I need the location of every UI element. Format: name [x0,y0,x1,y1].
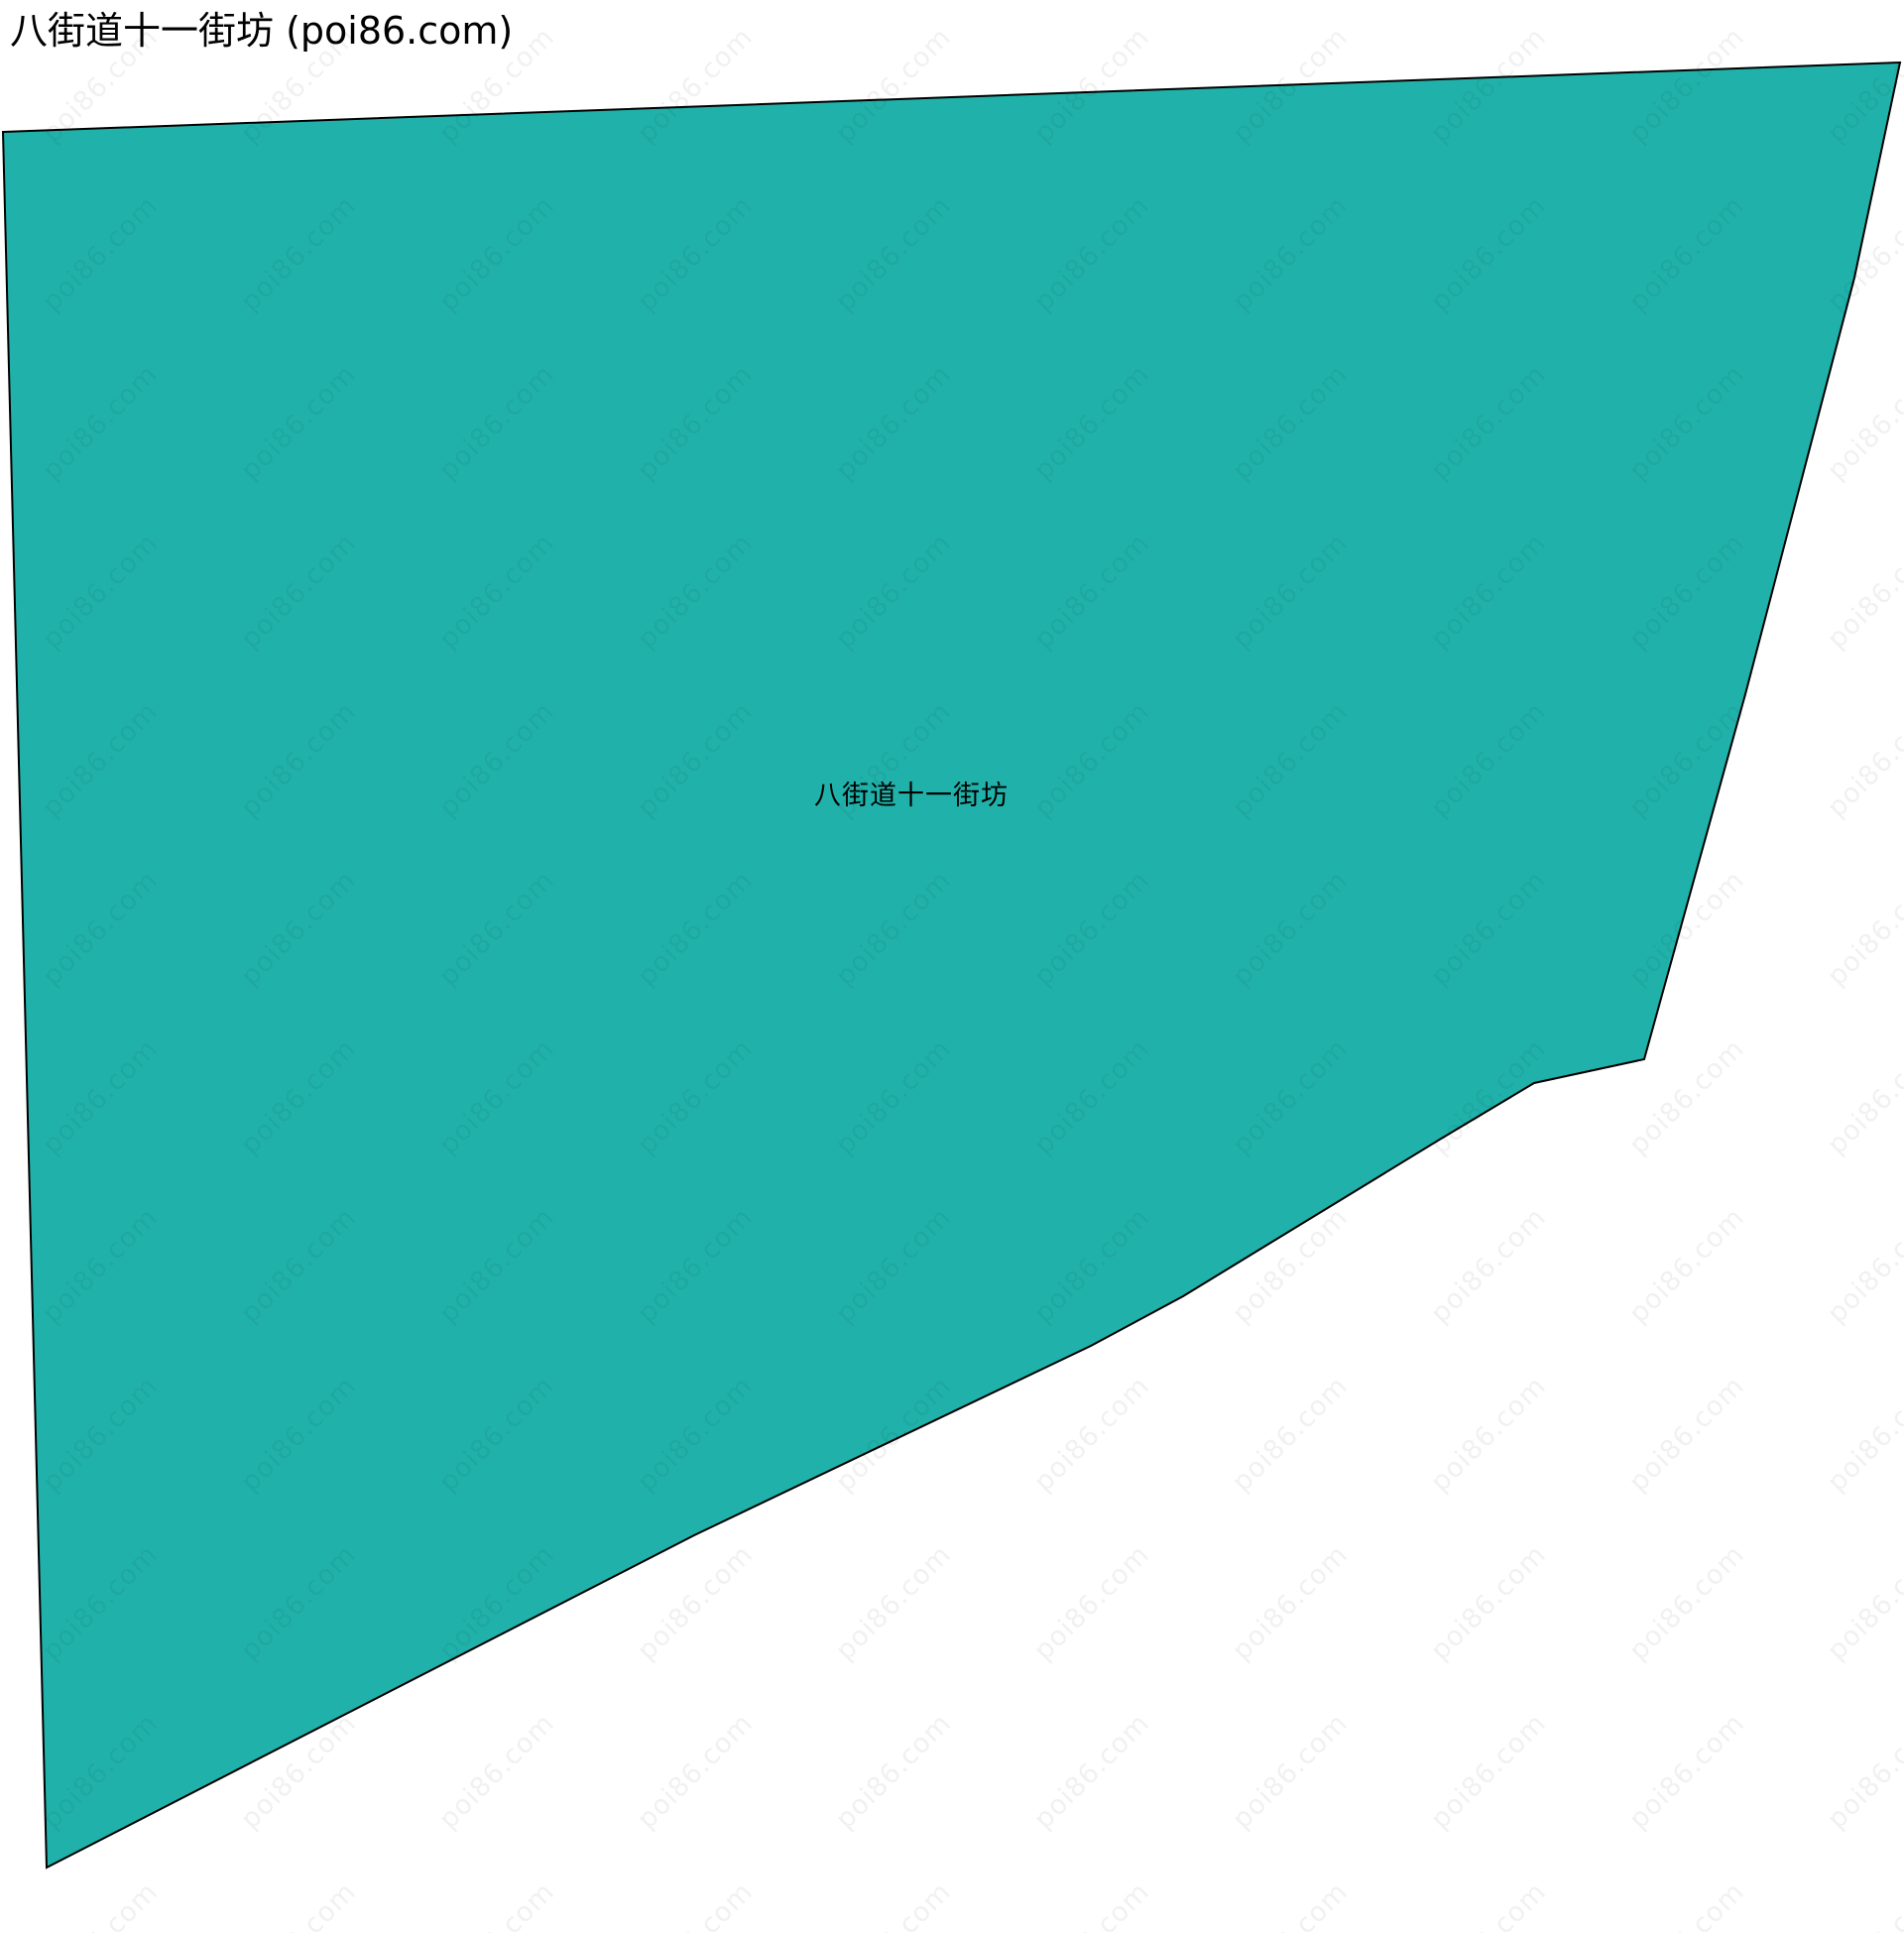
page-title: 八街道十一街坊 (poi86.com) [10,12,513,52]
region-label: 八街道十一街坊 [814,783,1009,809]
boundary-map: poi86.com [0,0,1904,1933]
map-page: poi86.com 八街道十一街坊 (poi86.com) 八街道十一街坊 [0,0,1904,1933]
watermark-layer [0,0,1904,1933]
